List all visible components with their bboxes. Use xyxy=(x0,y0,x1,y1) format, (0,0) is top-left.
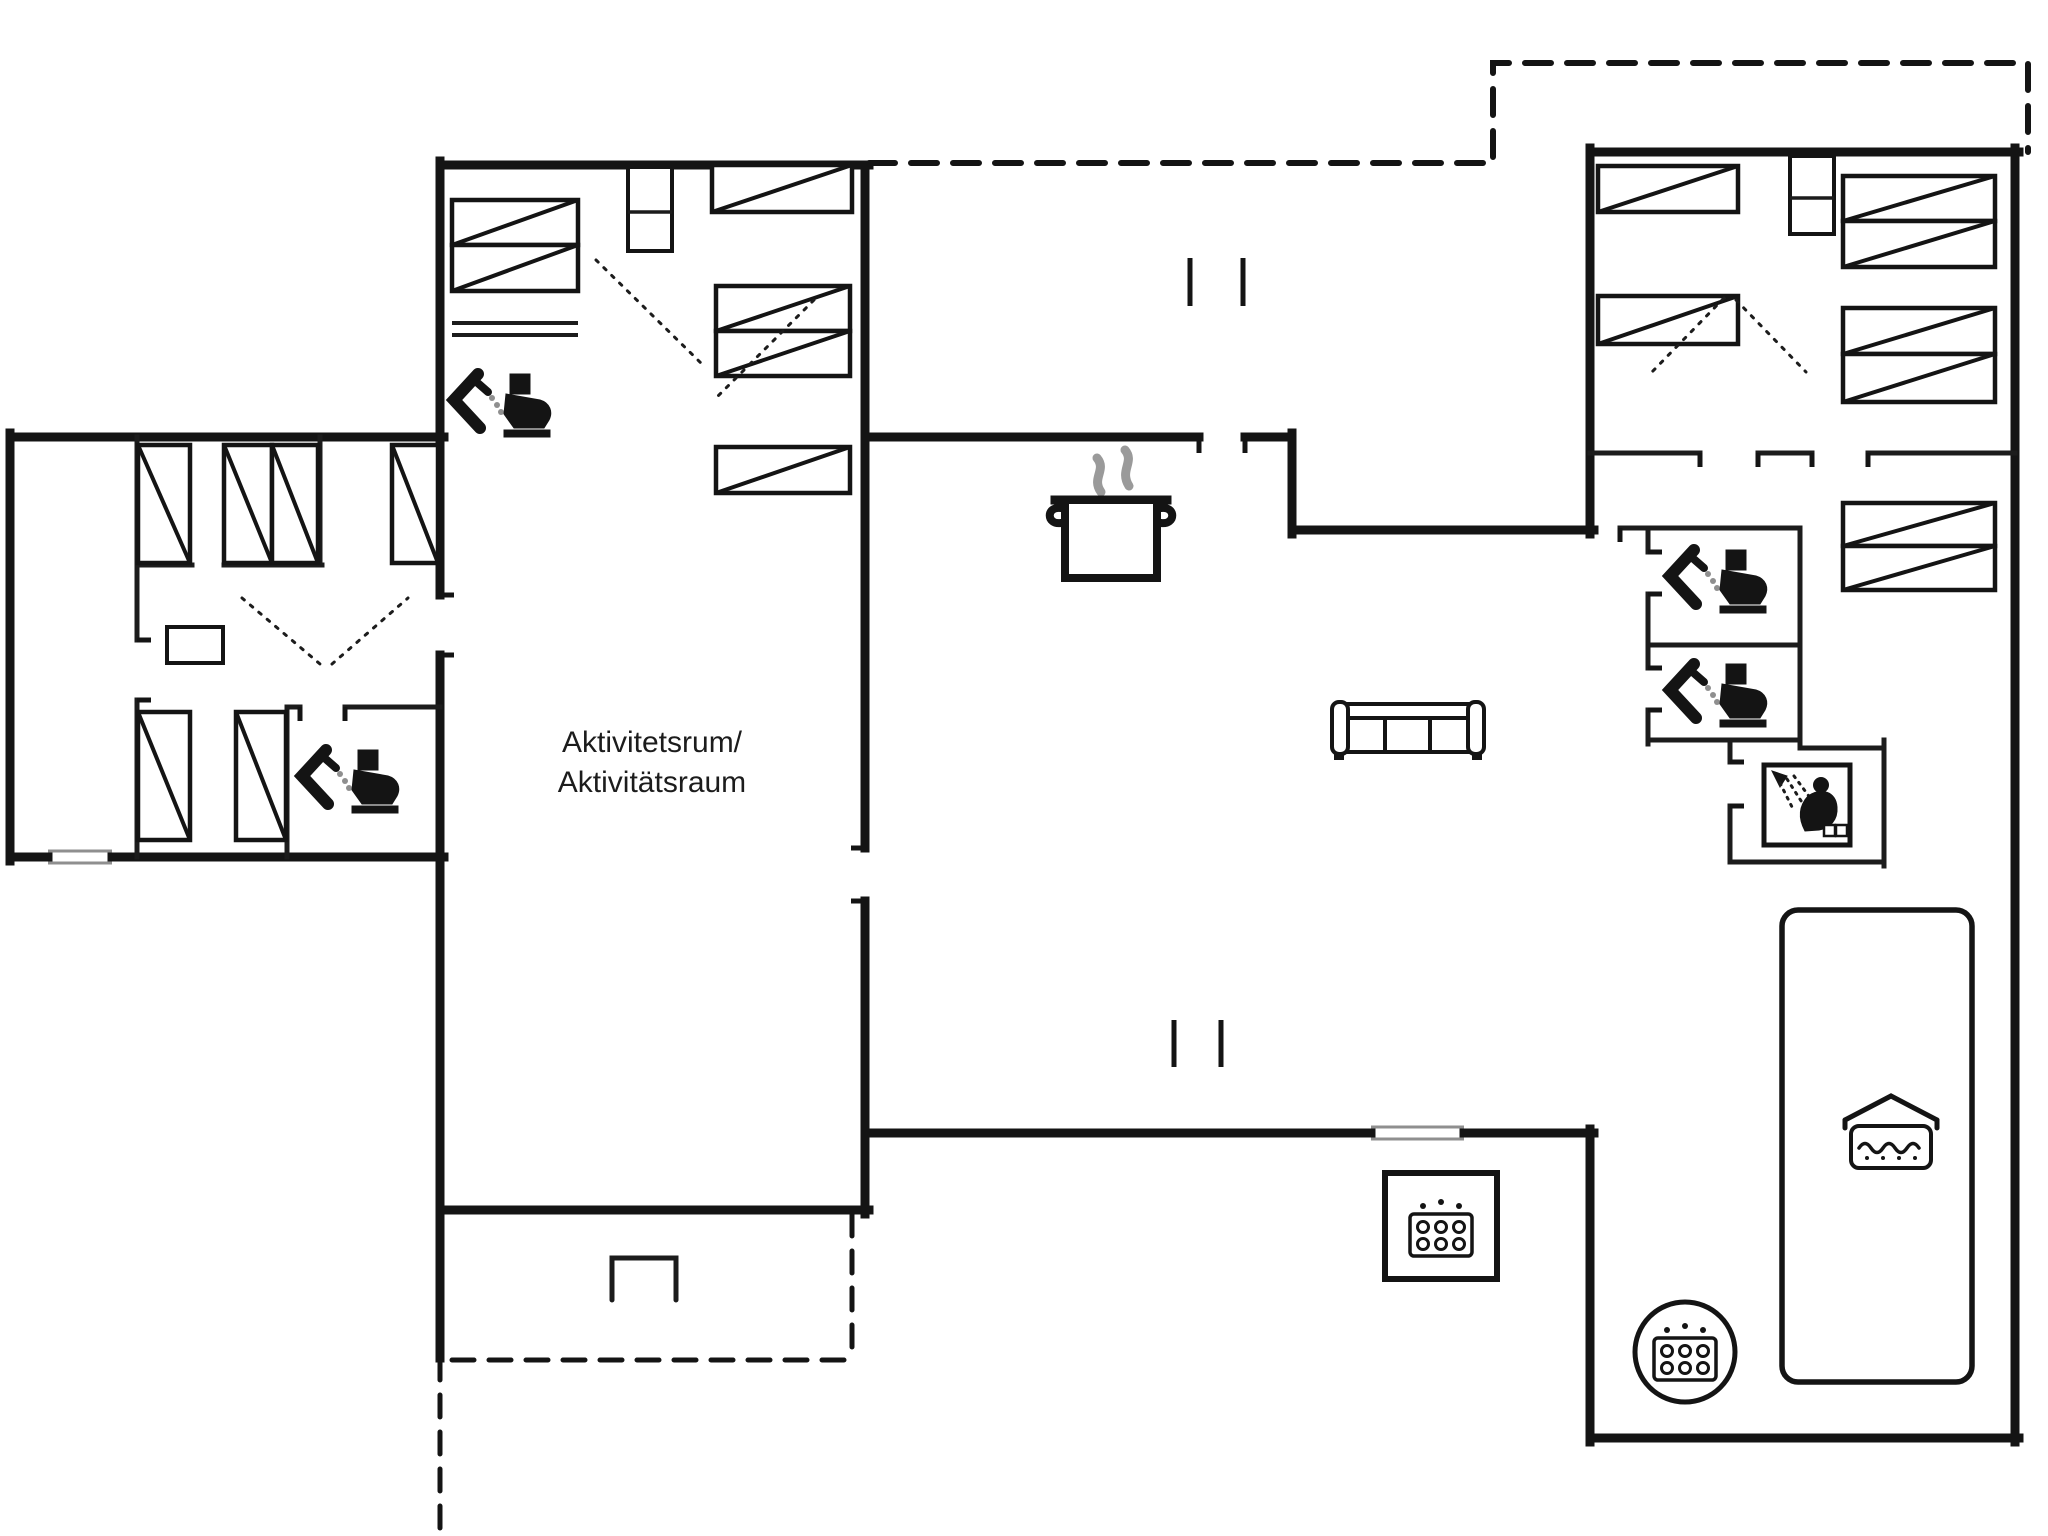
bed xyxy=(1843,354,1995,402)
bed xyxy=(138,712,190,840)
toilet-icon xyxy=(1726,550,1746,570)
sofa-foot xyxy=(1334,754,1344,760)
floorplan: Aktivitetsrum/ Aktivitätsraum xyxy=(0,0,2048,1536)
door-swing xyxy=(1736,300,1806,372)
door-swing xyxy=(596,260,704,366)
bed xyxy=(716,331,850,376)
bed xyxy=(716,447,850,493)
wc-icon xyxy=(302,750,399,813)
sofa-icon xyxy=(1332,702,1484,760)
toilet-icon xyxy=(510,374,530,394)
toilet-icon xyxy=(358,750,378,770)
toilet-icon xyxy=(504,394,551,428)
bed xyxy=(452,200,578,245)
bed xyxy=(392,445,438,563)
faucet-icon xyxy=(320,754,336,768)
water-dots-icon xyxy=(1714,585,1720,591)
wardrobe xyxy=(1790,156,1834,234)
steam-icon xyxy=(1125,450,1129,486)
pool-dots xyxy=(1865,1156,1869,1160)
toilet-icon xyxy=(1726,664,1746,684)
bed xyxy=(1843,503,1995,546)
water-dots-icon xyxy=(1705,685,1711,691)
bed xyxy=(138,445,190,563)
pool-dots xyxy=(1897,1156,1901,1160)
pool-dots xyxy=(1881,1156,1885,1160)
bubble xyxy=(1456,1203,1462,1209)
bed xyxy=(1598,166,1738,212)
water-dots-icon xyxy=(1714,699,1720,705)
room-label-line1: Aktivitetsrum/ xyxy=(562,726,743,759)
bubble xyxy=(1700,1327,1706,1333)
toilet-icon xyxy=(352,770,399,804)
room-label-line2: Aktivitätsraum xyxy=(558,766,746,799)
wc-icon xyxy=(1670,550,1767,613)
toilet-icon xyxy=(1720,570,1767,604)
water-dots-icon xyxy=(498,409,504,415)
bed xyxy=(716,286,850,331)
bed xyxy=(1843,176,1995,221)
bed xyxy=(1598,296,1738,344)
grill-icon xyxy=(612,1258,676,1300)
bed xyxy=(1843,546,1995,590)
bed xyxy=(236,712,286,840)
bubble xyxy=(1420,1203,1426,1209)
wc-icon xyxy=(454,374,551,437)
wc-icon xyxy=(1670,664,1767,727)
faucet-icon xyxy=(472,378,488,392)
sofa-armrest xyxy=(1332,702,1348,754)
toilet-icon xyxy=(1720,720,1766,727)
person-icon xyxy=(1813,777,1829,793)
steam-icon xyxy=(1097,458,1101,492)
water-dots-icon xyxy=(342,778,348,784)
toilet-icon xyxy=(504,430,550,437)
sofa-armrest xyxy=(1468,702,1484,754)
toilet-icon xyxy=(352,806,398,813)
floorplan-layers xyxy=(10,63,2028,1536)
sofa-body xyxy=(1340,704,1476,752)
wardrobe xyxy=(167,627,223,663)
water-dots-icon xyxy=(489,395,495,401)
pot-body xyxy=(1065,500,1157,578)
water-dots-icon xyxy=(337,771,343,777)
water-dots-icon xyxy=(494,402,500,408)
pot-handle-icon xyxy=(1050,508,1061,523)
bubble xyxy=(1664,1327,1670,1333)
bed xyxy=(712,165,852,212)
pool-dots xyxy=(1913,1156,1917,1160)
faucet-icon xyxy=(1688,668,1704,682)
toilet-icon xyxy=(1720,606,1766,613)
bed xyxy=(272,445,318,563)
stove-pot-icon xyxy=(1050,450,1173,578)
shower-tray xyxy=(1824,825,1835,836)
bubble xyxy=(1682,1323,1688,1329)
shower-icon xyxy=(1764,765,1850,845)
faucet-icon xyxy=(1688,554,1704,568)
bed xyxy=(452,245,578,291)
door-swing xyxy=(242,598,320,664)
bed xyxy=(1843,221,1995,267)
water-dots-icon xyxy=(346,785,352,791)
bubble xyxy=(1438,1199,1444,1205)
toilet-icon xyxy=(1720,684,1767,718)
water-dots-icon xyxy=(1710,692,1716,698)
shower-tray xyxy=(1836,825,1847,836)
water-dots-icon xyxy=(1705,571,1711,577)
sofa-foot xyxy=(1472,754,1482,760)
wardrobe xyxy=(628,167,672,251)
door-swing xyxy=(332,598,408,664)
pot-handle-icon xyxy=(1161,508,1172,523)
bed xyxy=(1843,308,1995,354)
water-dots-icon xyxy=(1710,578,1716,584)
bed xyxy=(224,445,272,563)
